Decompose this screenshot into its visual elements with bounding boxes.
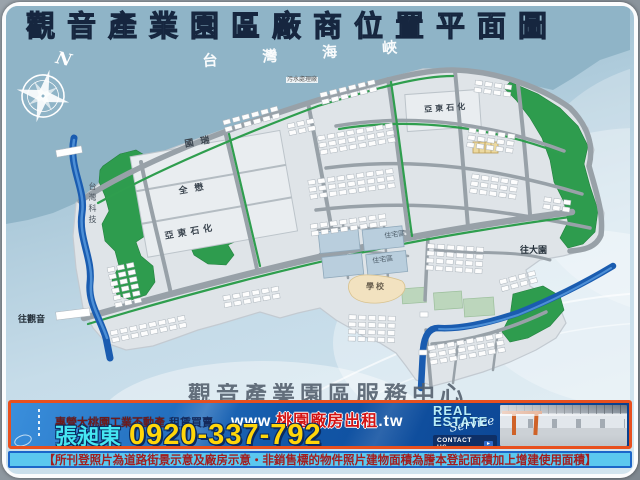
factory-block (318, 178, 326, 184)
direction-label-guanyin: 往觀音 (18, 315, 45, 324)
factory-block (436, 259, 444, 264)
factory-block (436, 266, 444, 271)
factory-block (318, 135, 326, 141)
factory-block (456, 253, 464, 258)
factory-block (499, 192, 507, 198)
factory-block (359, 142, 367, 148)
factory-block (388, 331, 395, 336)
factory-block (498, 347, 506, 353)
factory-block (320, 222, 328, 228)
factory-block (320, 149, 328, 155)
factory-block (475, 261, 483, 266)
factory-block (509, 186, 517, 192)
factory-block (388, 137, 396, 143)
factory-block (349, 315, 356, 320)
factory-block (496, 146, 504, 152)
factory-block (378, 184, 386, 190)
factory-block (476, 247, 484, 252)
company-label-taiwan-tech: 台灣科技 (88, 182, 96, 226)
photo-floor-sheen (500, 405, 627, 416)
factory-block (330, 147, 338, 153)
factory-block (386, 176, 394, 182)
factory-block (339, 146, 347, 152)
factory-block (350, 225, 358, 231)
factory-block (368, 323, 375, 328)
flyer-content: 觀音產業園區廠商位置平面圖 台灣海峽 N 國瑞 全懋 亞東石化 亞東石化 台灣科… (6, 6, 634, 474)
factory-block (337, 132, 345, 138)
factory-block (386, 130, 394, 136)
factory-block (429, 352, 437, 358)
factory-block (356, 128, 364, 134)
factory-block (448, 349, 456, 355)
factory-block (319, 185, 327, 191)
factory-block (498, 132, 506, 138)
factory-block (387, 183, 395, 189)
factory-block (388, 323, 395, 328)
factory-block (377, 177, 385, 183)
factory-block (369, 222, 377, 228)
factory-block (378, 316, 385, 321)
factory-block (379, 221, 387, 227)
factory-block (554, 198, 562, 204)
factory-block (440, 357, 448, 363)
school-label: 學校 (366, 283, 386, 291)
factory-block (378, 330, 385, 335)
banner-vertical-marks (38, 409, 40, 436)
factory-block (468, 135, 476, 141)
disclaimer-text: 【所刊登照片為道路街景示意及廠房示意‧非銷售標的物件照片建物面積為謄本登記面積加… (44, 451, 597, 468)
factory-block (484, 89, 492, 95)
factory-block (494, 83, 502, 89)
factory-block (477, 136, 485, 142)
factory-block (481, 175, 489, 181)
factory-block (475, 80, 483, 86)
industrial-park-map: 觀音產業園區廠商位置平面圖 台灣海峽 N 國瑞 全懋 亞東石化 亞東石化 台灣科… (6, 6, 630, 402)
factory-block (329, 191, 337, 197)
factory-block (544, 197, 552, 203)
factory-block (474, 87, 482, 93)
factory-block (469, 352, 477, 358)
contact-us-button[interactable]: CONTACT US ▸ (433, 435, 497, 449)
factory-block (488, 349, 496, 355)
factory-block (337, 175, 345, 181)
factory-block (501, 178, 509, 184)
factory-block (349, 218, 357, 224)
map-canvas (6, 6, 630, 402)
factory-block (330, 221, 338, 227)
factory-block (368, 186, 376, 192)
factory-block (377, 337, 384, 342)
factory-block (488, 131, 496, 137)
disclaimer-bar: 【所刊登照片為道路街景示意及廠房示意‧非銷售標的物件照片建物面積為謄本登記面積加… (8, 451, 632, 468)
factory-block (426, 265, 434, 270)
factory-block (348, 336, 355, 341)
factory-block (466, 254, 474, 259)
factory-block (427, 244, 435, 249)
factory-block (310, 194, 318, 200)
factory-block (437, 251, 445, 256)
factory-block (348, 329, 355, 334)
factory-block (358, 337, 365, 342)
factory-block (320, 192, 328, 198)
factory-block (496, 340, 504, 346)
factory-block (360, 224, 368, 230)
factory-block (339, 190, 347, 196)
factory-block (491, 177, 499, 183)
factory-block (376, 170, 384, 176)
factory-block (428, 345, 436, 351)
factory-block (472, 174, 480, 180)
contact-arrow-icon: ▸ (484, 441, 493, 448)
factory-block (377, 132, 385, 138)
factory-block (358, 329, 365, 334)
factory-block (465, 261, 473, 266)
factory-block (387, 338, 394, 343)
factory-block (500, 185, 508, 191)
factory-block (466, 246, 474, 251)
factory-block (310, 223, 318, 229)
factory-block (388, 316, 395, 321)
factory-block (328, 140, 336, 146)
factory-block (487, 138, 495, 144)
direction-label-dayuan: 往大園 (520, 246, 547, 255)
factory-block (505, 148, 513, 154)
factory-block (476, 336, 484, 342)
factory-block (368, 141, 376, 147)
factory-block (508, 194, 516, 200)
factory-block (478, 351, 486, 357)
factory-block (467, 142, 475, 148)
factory-block (467, 345, 475, 351)
factory-block (367, 134, 375, 140)
factory-block (426, 258, 434, 263)
map-watermark: 觀音產業園區服務中心 (188, 383, 508, 400)
ad-banner: 專營大桃園工業不動產 租賃買賣 www.桃園廠房出租.tw 張昶東 0920-3… (8, 400, 632, 449)
factory-block (271, 286, 279, 292)
factory-block (348, 137, 356, 143)
factory-block (311, 230, 319, 236)
factory-block (479, 190, 487, 196)
factory-block (478, 129, 486, 135)
factory-block (466, 338, 474, 344)
factory-block (562, 207, 570, 213)
factory-block (349, 188, 357, 194)
factory-block (366, 126, 374, 132)
factory-block (489, 191, 497, 197)
factory-block (485, 82, 493, 88)
factory-block (437, 343, 445, 349)
factory-block (476, 144, 484, 150)
factory-block (367, 178, 375, 184)
factory-block (319, 142, 327, 148)
factory-block (347, 174, 355, 180)
factory-block (243, 298, 251, 304)
warehouse-photo (500, 405, 627, 446)
factory-block (242, 291, 250, 297)
factory-block (438, 350, 446, 356)
factory-block (475, 269, 483, 274)
factory-block (427, 251, 435, 256)
factory-block (507, 133, 515, 139)
map-title: 觀音產業園區廠商位置平面圖 (26, 9, 606, 47)
factory-block (375, 125, 383, 131)
agent-name: 張昶東 (55, 419, 121, 449)
factory-block (349, 322, 356, 327)
factory-block (497, 139, 505, 145)
factory-block (368, 337, 375, 342)
factory-block (340, 226, 348, 232)
factory-block (368, 315, 375, 320)
factory-block (368, 215, 376, 221)
factory-block (261, 288, 269, 294)
factory-block (338, 182, 346, 188)
photo-doors (528, 419, 625, 428)
factory-block (328, 184, 336, 190)
factory-block (252, 290, 260, 296)
factory-block (486, 145, 494, 151)
factory-block (480, 182, 488, 188)
factory-block (543, 204, 551, 210)
factory-block (358, 322, 365, 327)
factory-block (253, 297, 261, 303)
factory-block (495, 333, 503, 339)
factory-block (321, 229, 329, 235)
factory-block (447, 245, 455, 250)
factory-block (449, 356, 457, 362)
factory-block (465, 268, 473, 273)
factory-block (458, 347, 466, 353)
factory-block (493, 90, 501, 96)
factory-block (446, 252, 454, 257)
factory-block (447, 342, 455, 348)
factory-block (356, 173, 364, 179)
factory-block (456, 340, 464, 346)
factory-block (327, 133, 335, 139)
factory-block (357, 135, 365, 141)
factory-block (563, 200, 571, 206)
factory-block (263, 295, 271, 301)
factory-block (378, 214, 386, 220)
factory-block (457, 246, 465, 251)
factory-block (366, 171, 374, 177)
factory-block (346, 130, 354, 136)
factory-block (553, 205, 561, 211)
factory-block (223, 295, 231, 301)
factory-block (476, 254, 484, 259)
factory-block (308, 179, 316, 185)
factory-block (437, 244, 445, 249)
contact-us-label: CONTACT US (437, 437, 481, 449)
factory-block (368, 330, 375, 335)
factory-block (327, 177, 335, 183)
factory-block (378, 323, 385, 328)
factory-block (510, 179, 518, 185)
factory-block (487, 342, 495, 348)
factory-block (359, 217, 367, 223)
factory-block (357, 180, 365, 186)
factory-block (348, 181, 356, 187)
factory-block (445, 266, 453, 271)
url-suffix: .tw (378, 413, 403, 430)
factory-block (224, 302, 232, 308)
phone-number[interactable]: 0920-337-792 (129, 419, 322, 449)
factory-block (385, 169, 393, 175)
factory-block (455, 267, 463, 272)
factory-block (359, 315, 366, 320)
banner-contact-row: 張昶東 0920-337-792 (55, 419, 322, 449)
factory-block (504, 84, 512, 90)
sewage-plant-label: 污水處理廠 (286, 77, 318, 83)
factory-block (272, 293, 280, 299)
factory-block (459, 354, 467, 360)
factory-block (331, 228, 339, 234)
factory-block (430, 359, 438, 365)
factory-block (490, 184, 498, 190)
factory-block (506, 140, 514, 146)
factory-block (456, 260, 464, 265)
factory-block (503, 91, 511, 97)
factory-block (309, 187, 317, 193)
factory-block (446, 259, 454, 264)
factory-block (385, 123, 393, 129)
factory-block (338, 139, 346, 145)
factory-block (470, 188, 478, 194)
factory-block (485, 335, 493, 341)
factory-block (339, 219, 347, 225)
factory-block (471, 181, 479, 187)
real-estate-brand: REAL ESTATE Service CONTACT US ▸ (433, 405, 497, 447)
factory-block (378, 139, 386, 145)
flyer-page: 觀音產業園區廠商位置平面圖 台灣海峽 N 國瑞 全懋 亞東石化 亞東石化 台灣科… (0, 0, 640, 480)
factory-block (477, 344, 485, 350)
factory-block (469, 128, 477, 134)
factory-block (358, 187, 366, 193)
factory-block (349, 144, 357, 150)
factory-block (234, 300, 242, 306)
factory-block (232, 293, 240, 299)
